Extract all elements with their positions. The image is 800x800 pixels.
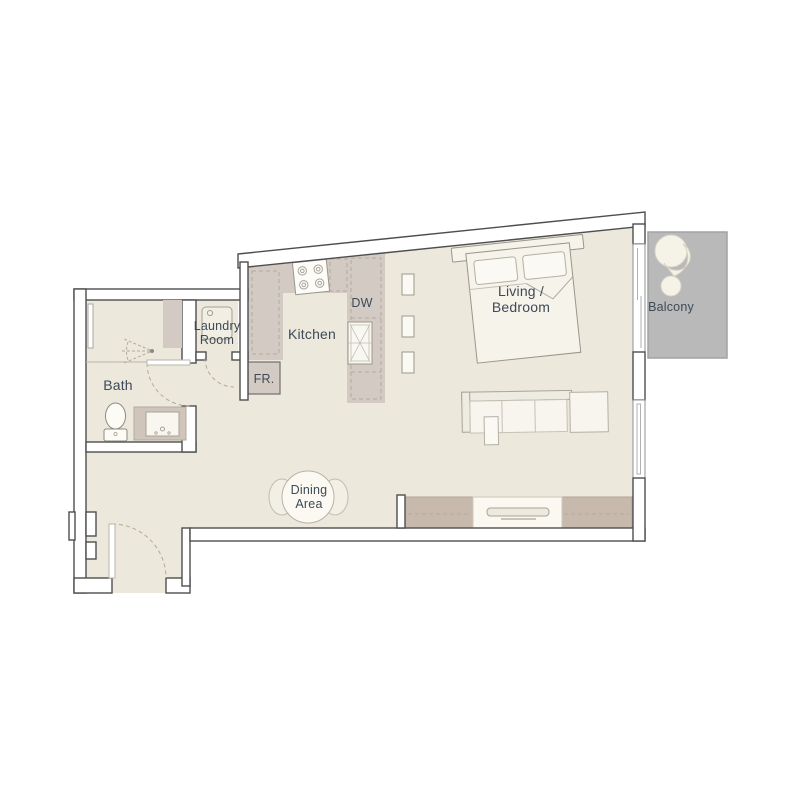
fixture-label-fridge: FR. <box>254 372 275 386</box>
ottoman-icon <box>484 417 498 445</box>
entry-door-leaf <box>109 524 115 578</box>
tv-console <box>405 497 632 530</box>
room-label-laundry-2: Room <box>200 333 234 347</box>
room-label-living-2: Bedroom <box>492 299 550 315</box>
sliding-door <box>633 244 645 352</box>
sofa-side-module <box>570 392 609 433</box>
kitchen-sink-icon <box>348 322 372 364</box>
west-wall <box>74 289 86 593</box>
toilet-icon <box>104 403 127 441</box>
kitchen-west-wall <box>240 262 248 400</box>
east-window <box>633 400 645 478</box>
room-label-balcony: Balcony <box>648 300 694 314</box>
room-label-laundry-1: Laundry <box>194 319 241 333</box>
entry-wall-left <box>74 578 112 593</box>
east-wall-bottom <box>633 478 645 541</box>
laundry-wall-left <box>196 352 206 360</box>
east-wall-top <box>633 224 645 244</box>
north-wall-left <box>74 289 248 300</box>
floor-plan-drawing: Bath Laundry Room Kitchen DW FR. Living … <box>0 0 800 800</box>
bar-stool-icon <box>402 274 414 295</box>
west-wall-bumpout <box>69 512 75 540</box>
bath-shaft-block <box>163 300 182 348</box>
vestibule-east-wall <box>182 528 190 586</box>
wall-stub-upper <box>86 512 96 536</box>
bath-door-underlay <box>182 363 196 406</box>
room-label-dining-2: Area <box>295 497 322 511</box>
bath-south-wall <box>86 442 196 452</box>
room-label-bath: Bath <box>103 377 133 393</box>
shower-glass-panel <box>88 304 93 348</box>
balcony-area <box>648 232 727 358</box>
east-wall-mid <box>633 352 645 400</box>
room-label-living-1: Living / <box>498 283 544 299</box>
stove-icon <box>292 259 329 294</box>
south-wall <box>190 528 645 541</box>
bar-stools <box>402 274 414 373</box>
laundry-door-underlay <box>206 352 232 360</box>
balcony-table-icon <box>661 276 681 296</box>
floor-plan-canvas: Bath Laundry Room Kitchen DW FR. Living … <box>0 0 800 800</box>
fixture-label-dw: DW <box>351 296 372 310</box>
room-label-kitchen: Kitchen <box>288 326 336 342</box>
entry-door-underlay <box>112 578 166 593</box>
console-wall-stub <box>397 495 405 528</box>
bath-door-leaf <box>147 360 190 365</box>
wall-stub-lower <box>86 542 96 559</box>
bar-stool-icon <box>402 316 414 337</box>
vanity-sink-icon <box>134 407 186 440</box>
bar-stool-icon <box>402 352 414 373</box>
room-label-dining-1: Dining <box>291 483 328 497</box>
